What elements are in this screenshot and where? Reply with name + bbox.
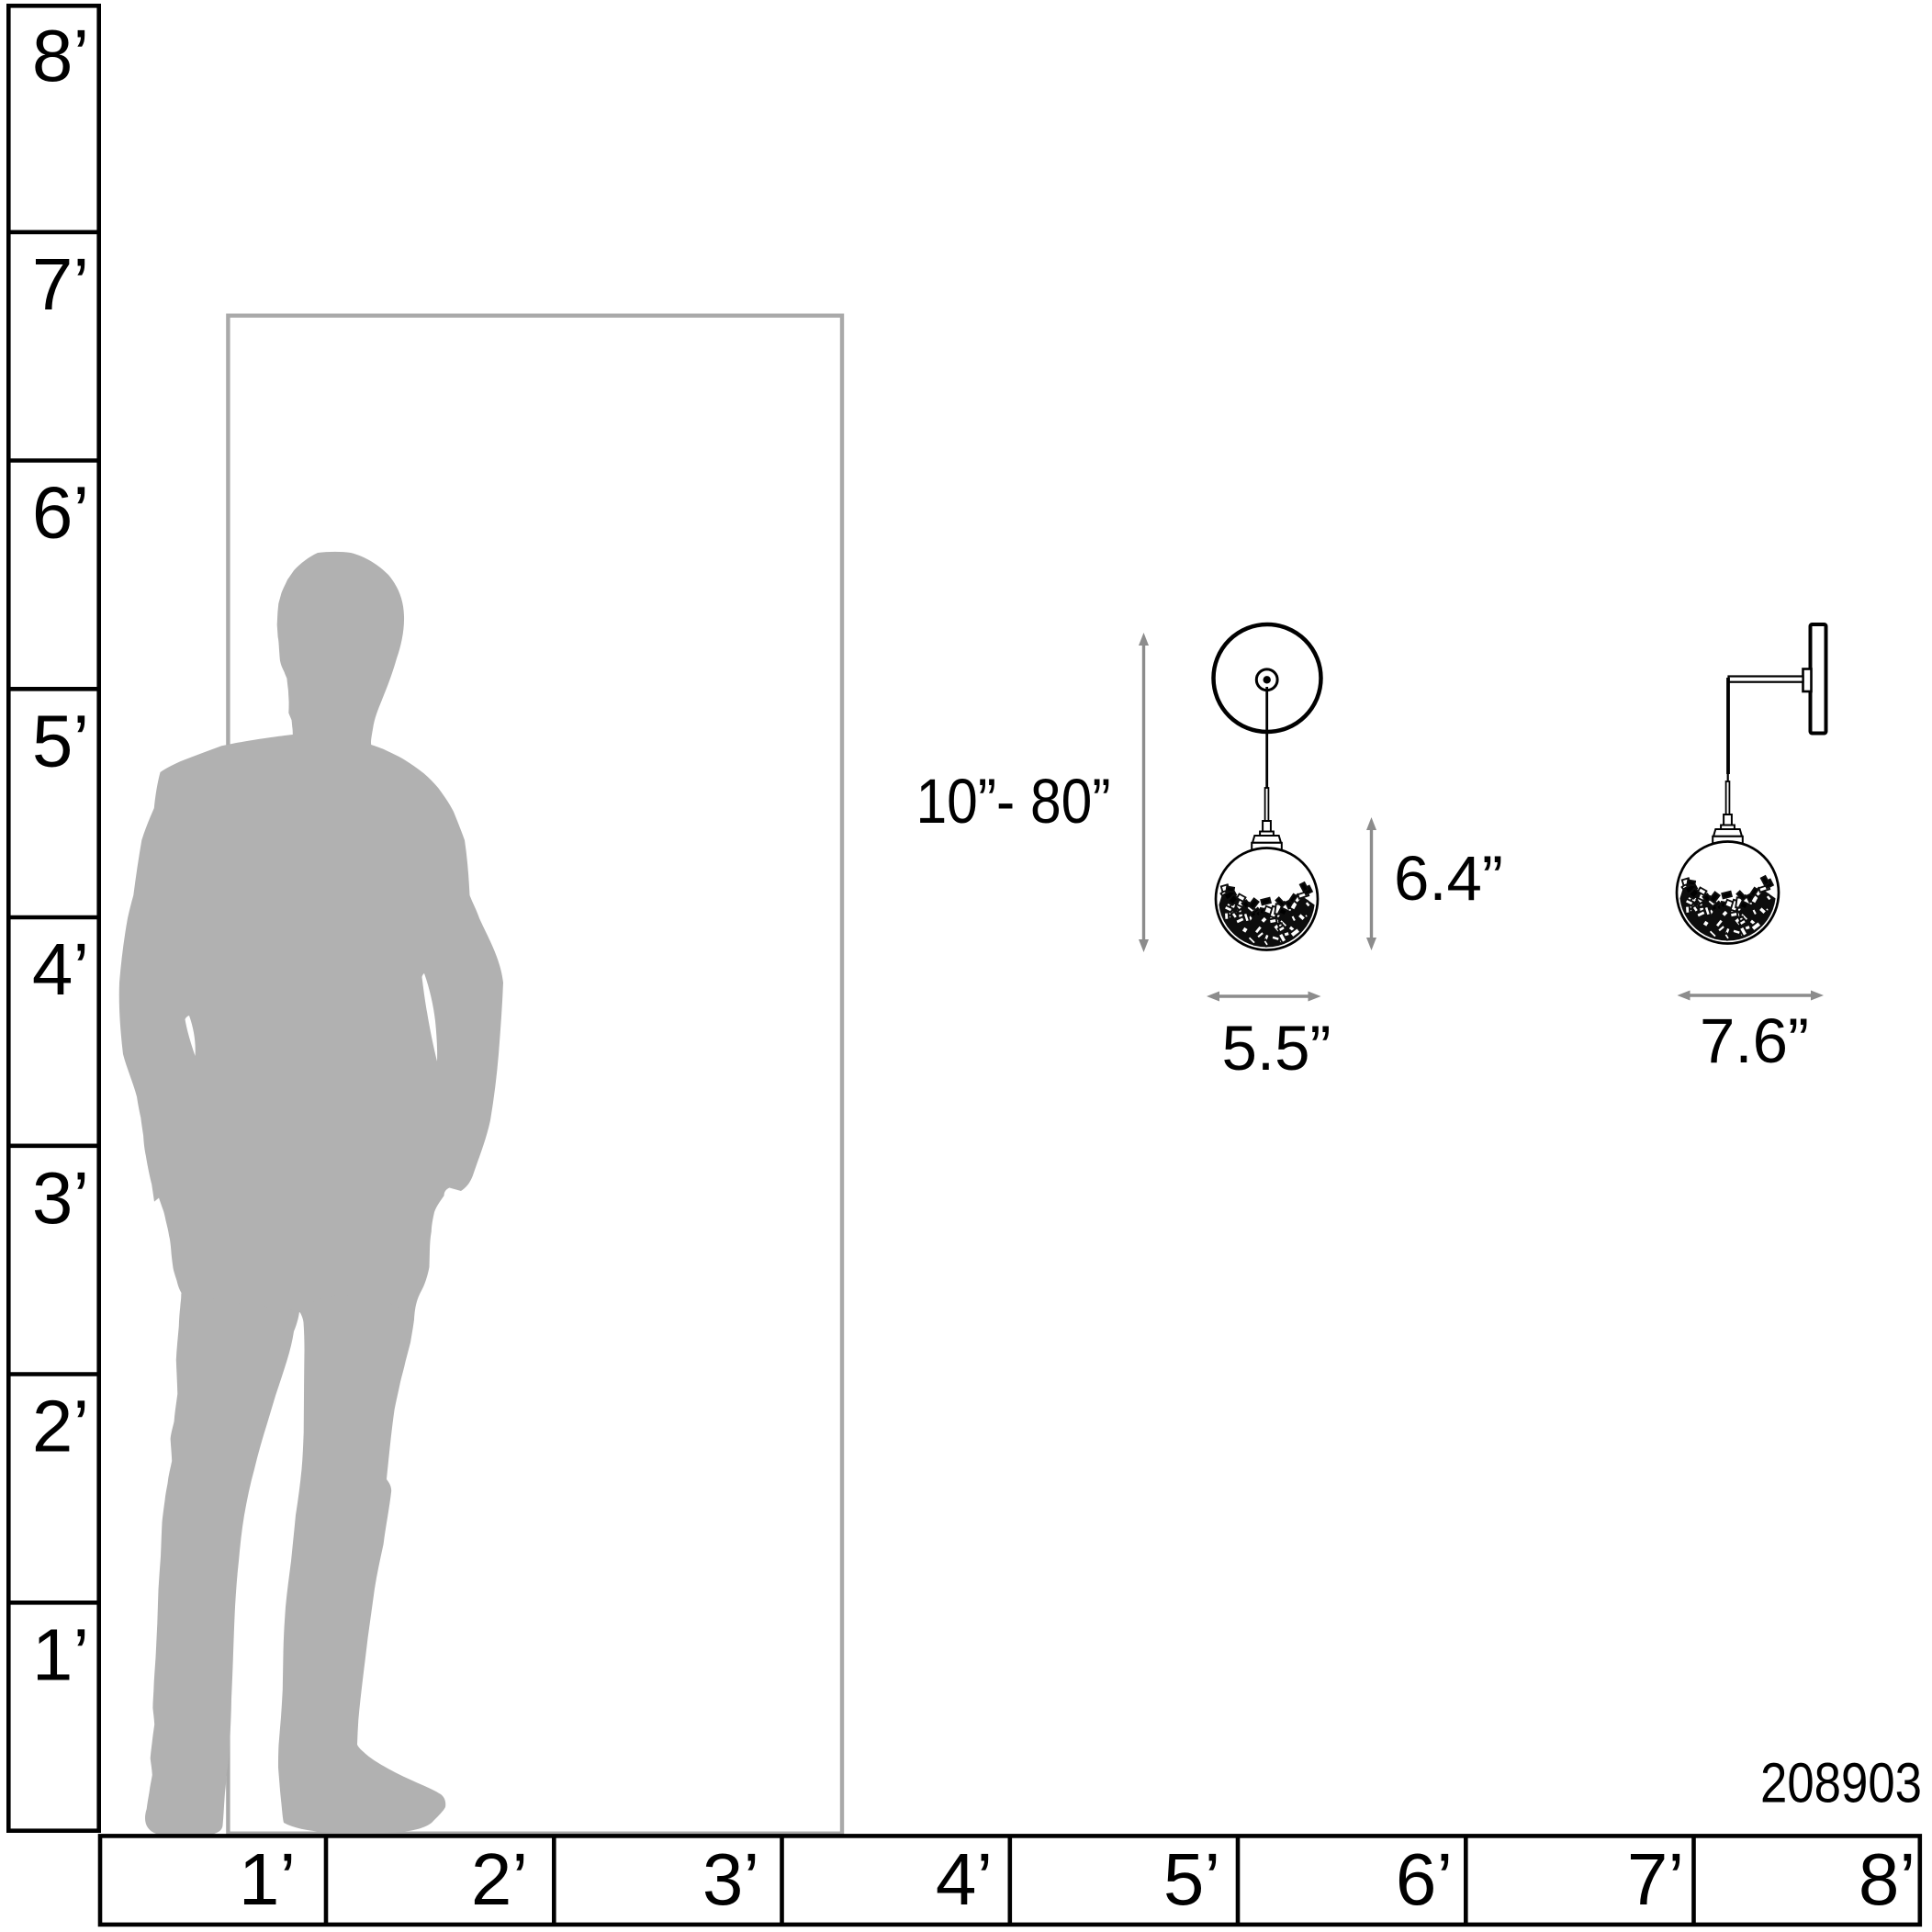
svg-text:6.4”: 6.4” <box>1394 843 1503 914</box>
svg-text:8’: 8’ <box>32 15 89 96</box>
svg-text:4’: 4’ <box>936 1838 993 1920</box>
svg-text:5.5”: 5.5” <box>1222 1013 1331 1084</box>
svg-text:8’: 8’ <box>1859 1838 1915 1920</box>
svg-text:2’: 2’ <box>471 1838 528 1920</box>
svg-text:3’: 3’ <box>702 1838 759 1920</box>
svg-text:10”- 80”: 10”- 80” <box>916 766 1111 837</box>
svg-text:1’: 1’ <box>239 1838 296 1920</box>
svg-text:5’: 5’ <box>1163 1838 1220 1920</box>
svg-text:3’: 3’ <box>32 1157 89 1239</box>
svg-text:7’: 7’ <box>1627 1838 1684 1920</box>
svg-text:2’: 2’ <box>32 1386 89 1467</box>
svg-text:208903: 208903 <box>1760 1752 1922 1814</box>
svg-text:7’: 7’ <box>32 243 89 325</box>
svg-text:7.6”: 7.6” <box>1700 1005 1809 1076</box>
svg-text:5’: 5’ <box>32 700 89 781</box>
svg-text:6’: 6’ <box>1396 1838 1453 1920</box>
svg-text:1’: 1’ <box>32 1613 89 1695</box>
svg-text:6’: 6’ <box>32 472 89 554</box>
svg-text:4’: 4’ <box>32 928 89 1010</box>
